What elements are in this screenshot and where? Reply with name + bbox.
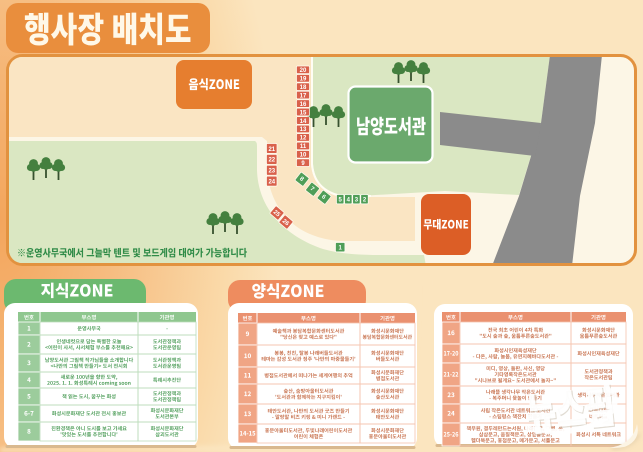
svg-text:22: 22 xyxy=(268,158,275,164)
svg-text:15: 15 xyxy=(300,110,307,116)
svg-text:16: 16 xyxy=(300,102,307,108)
svg-text:19: 19 xyxy=(300,77,307,83)
svg-text:10: 10 xyxy=(300,153,307,159)
svg-text:11: 11 xyxy=(300,144,307,150)
svg-text:20: 20 xyxy=(300,68,307,74)
svg-text:24: 24 xyxy=(268,180,275,186)
svg-text:23: 23 xyxy=(268,169,275,175)
svg-text:14: 14 xyxy=(300,119,307,125)
svg-text:13: 13 xyxy=(300,127,307,133)
svg-text:18: 18 xyxy=(300,85,307,91)
svg-text:21: 21 xyxy=(268,147,275,153)
svg-text:12: 12 xyxy=(300,136,307,142)
svg-text:17: 17 xyxy=(300,93,307,99)
